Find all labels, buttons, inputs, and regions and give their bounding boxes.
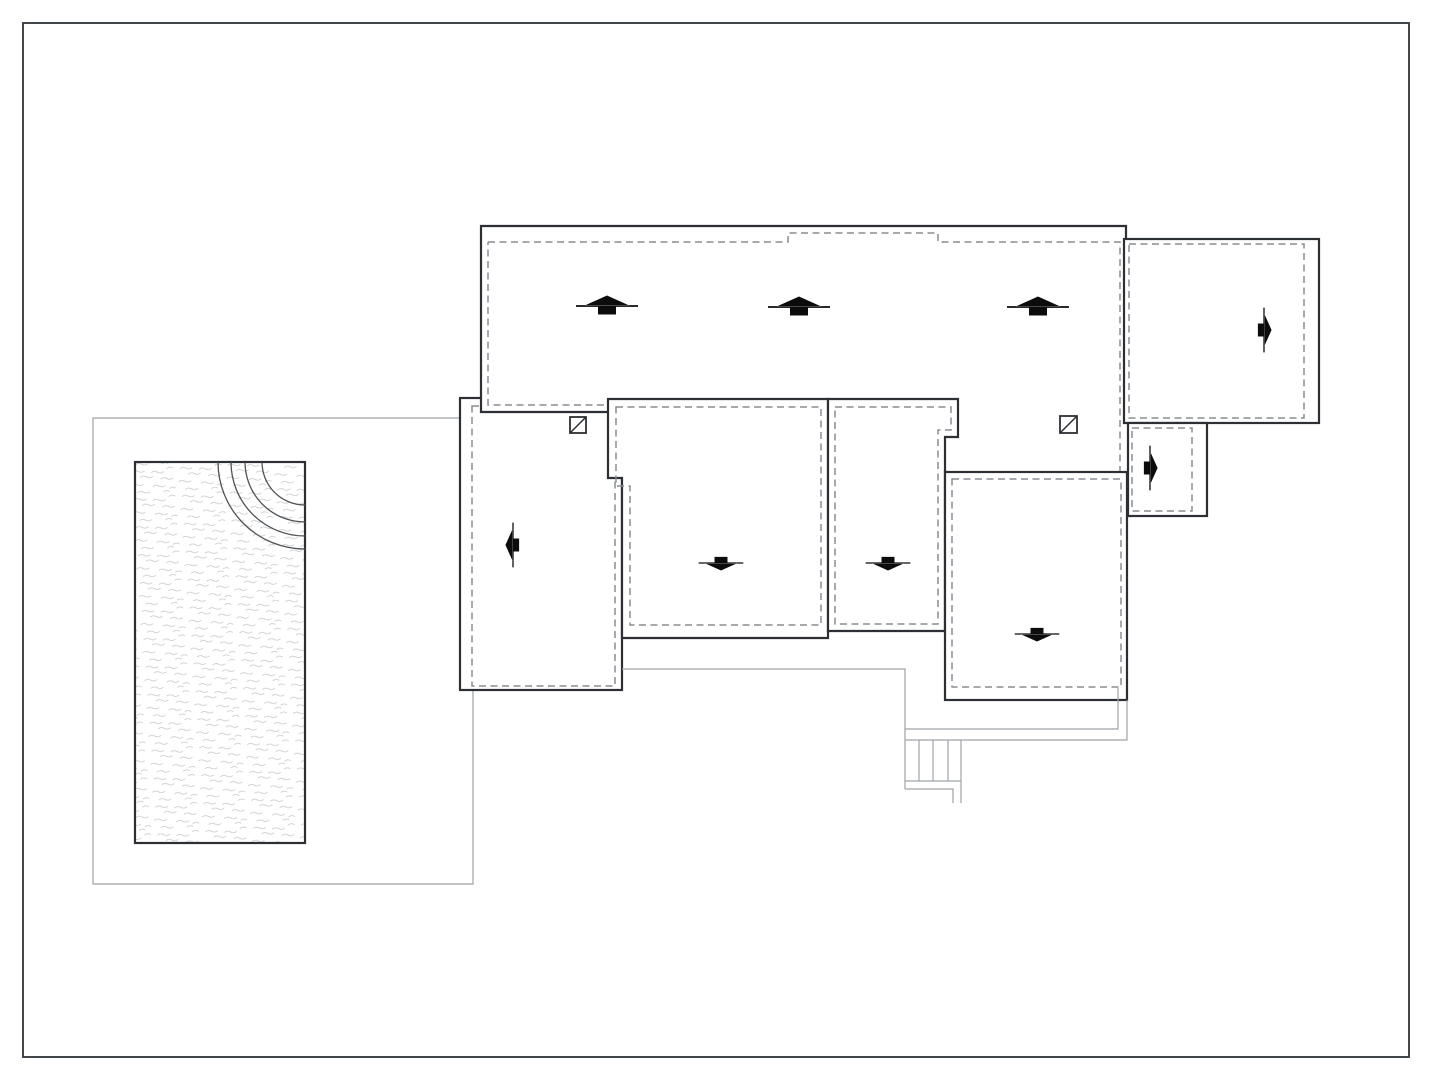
stair-lower-landing <box>905 789 953 803</box>
center-left-roof <box>608 399 828 638</box>
east-wing-roof <box>1124 239 1319 423</box>
blueprint-canvas <box>0 0 1432 1080</box>
entry-canopy-roof <box>1128 423 1207 516</box>
pool-basin <box>135 462 305 843</box>
plan-layer <box>23 23 1409 1057</box>
terrace-walkway-edge <box>622 669 905 789</box>
roof-drain-icon <box>1060 416 1077 433</box>
floor-plan-svg <box>0 0 1432 1080</box>
walkway-outer-edge <box>905 700 1127 740</box>
south-east-roof <box>945 472 1127 700</box>
roof-drain-icon <box>570 417 586 433</box>
